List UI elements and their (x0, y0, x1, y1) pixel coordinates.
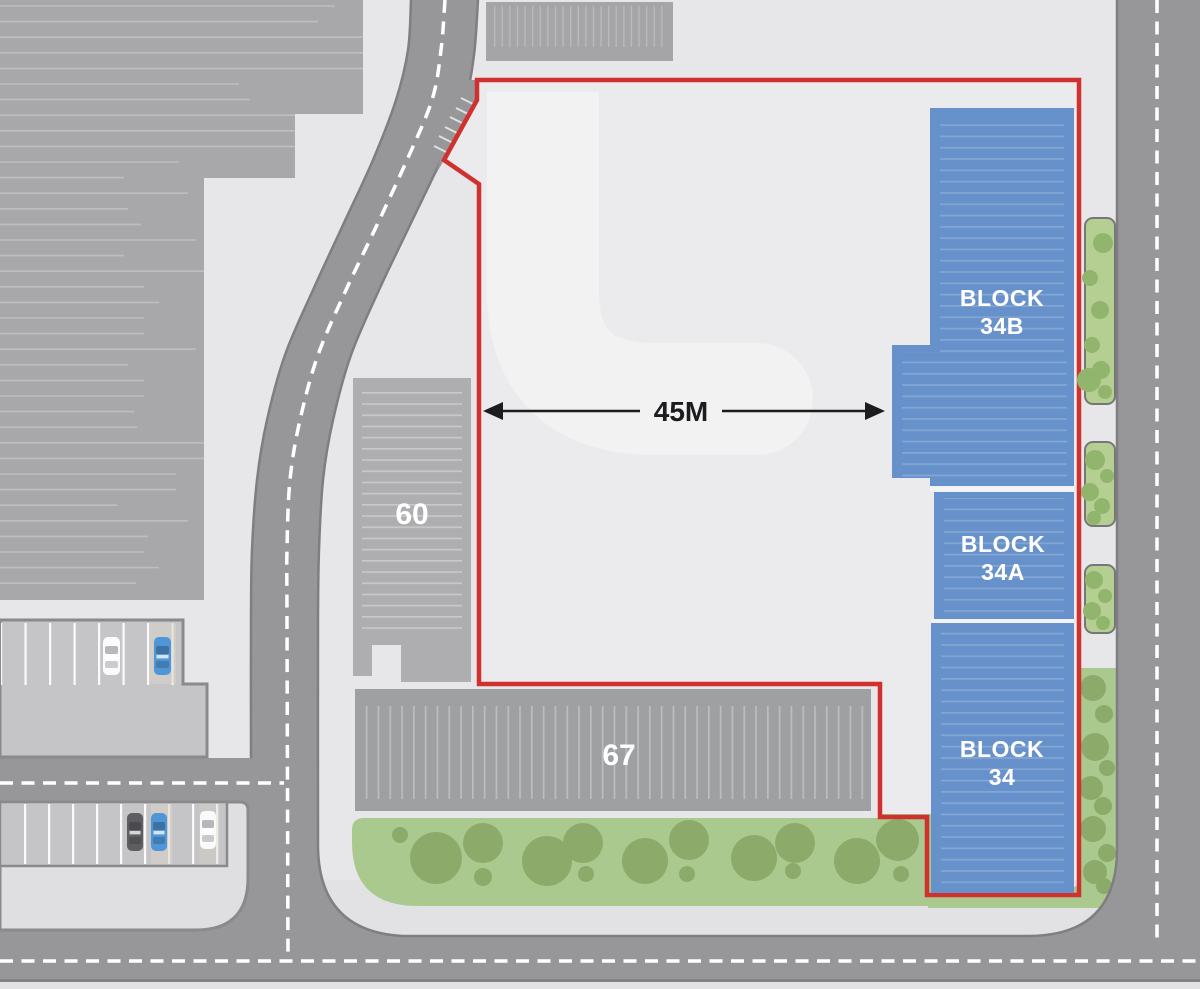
svg-text:34: 34 (989, 764, 1016, 790)
svg-text:BLOCK: BLOCK (960, 285, 1044, 311)
svg-text:60: 60 (395, 498, 428, 531)
svg-text:45M: 45M (654, 396, 708, 427)
svg-text:BLOCK: BLOCK (961, 531, 1045, 557)
svg-text:34A: 34A (981, 559, 1025, 585)
svg-text:34B: 34B (980, 313, 1024, 339)
svg-text:BLOCK: BLOCK (960, 736, 1044, 762)
svg-text:67: 67 (602, 739, 635, 772)
